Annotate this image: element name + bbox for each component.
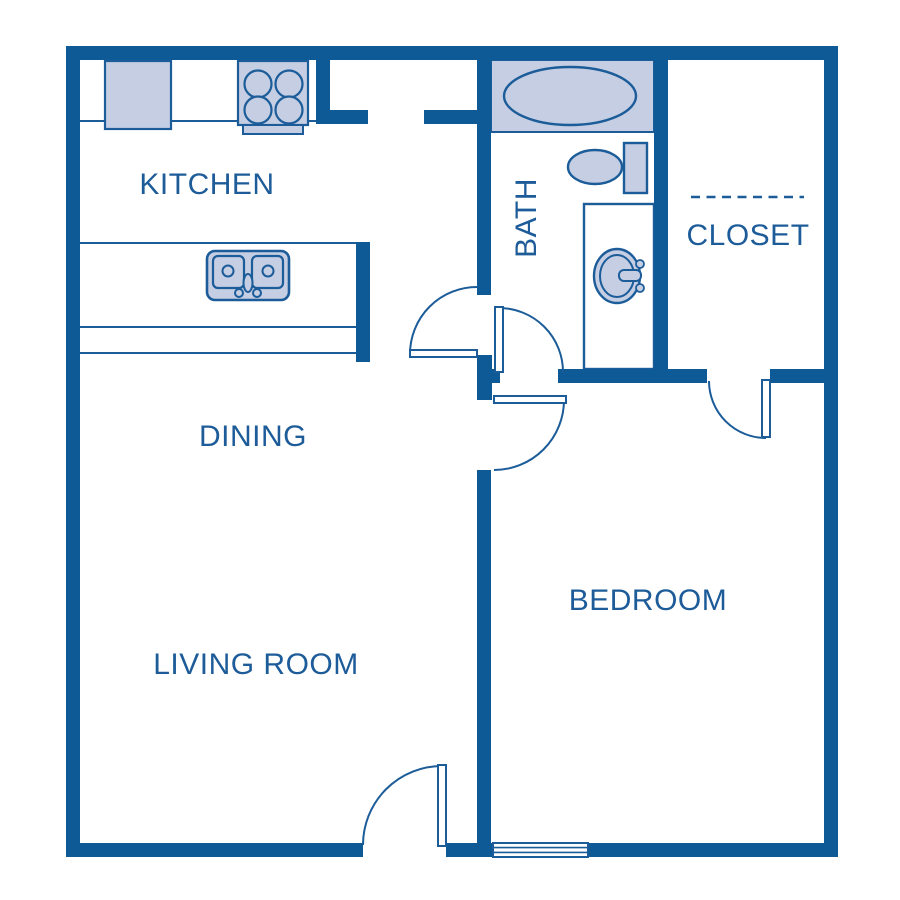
toilet-tank: [624, 143, 647, 193]
entry-door-leaf: [438, 765, 446, 846]
refrigerator: [105, 61, 171, 129]
kitchen-sink-drain: [263, 266, 274, 277]
vanity-faucet: [619, 270, 641, 281]
wall-bath-bottom: [558, 369, 707, 383]
stove-burner: [245, 71, 272, 98]
vanity-faucet-knob: [636, 260, 644, 268]
bedroom-door-swing: [494, 400, 564, 470]
plan-svg: [0, 0, 900, 900]
room-label-bath: BATH: [510, 178, 544, 258]
wall-kitchen-stub: [330, 110, 368, 124]
bath-bedroom-door-swing: [499, 308, 563, 372]
stove-burner: [276, 71, 303, 98]
wall-top: [66, 46, 838, 60]
bedroom-door-leaf: [494, 396, 566, 403]
toilet-bowl: [568, 150, 622, 184]
wall-closet-bottom: [770, 369, 824, 383]
kitchen-faucet-knob: [235, 289, 243, 297]
wall-left: [66, 46, 80, 857]
wall-hall-block: [477, 355, 492, 400]
wall-bottom-mid: [446, 843, 493, 857]
wall-bottom-left: [66, 843, 363, 857]
wall-bedroom-divider: [477, 470, 491, 843]
stove-burner: [245, 97, 272, 124]
bathtub: [504, 67, 636, 125]
room-label-closet: CLOSET: [686, 219, 809, 253]
vanity-faucet-knob: [636, 284, 644, 292]
wall-bottom-right: [588, 843, 838, 857]
bath-door-leaf: [410, 350, 477, 357]
bath-bedroom-door-leaf: [495, 307, 503, 372]
wall-kitchen-vert: [316, 60, 330, 124]
kitchen-faucet-knob: [253, 289, 261, 297]
room-label-dining: DINING: [199, 420, 307, 454]
closet-door-leaf: [762, 380, 770, 437]
stove-tray: [243, 125, 303, 134]
bedroom-window: [493, 843, 588, 857]
room-label-kitchen: KITCHEN: [139, 168, 274, 202]
wall-bath-left: [477, 60, 491, 295]
wall-right: [824, 46, 838, 857]
wall-bath-right: [654, 60, 668, 383]
floor-plan: KITCHEN DINING LIVING ROOM BEDROOM BATH …: [0, 0, 900, 900]
room-label-living-room: LIVING ROOM: [153, 648, 359, 682]
entry-door-swing: [363, 766, 442, 845]
room-label-bedroom: BEDROOM: [569, 584, 728, 618]
bath-door-swing: [410, 287, 477, 354]
kitchen-sink-drain: [223, 266, 234, 277]
closet-door-swing: [709, 381, 766, 438]
stove-burner: [276, 97, 303, 124]
kitchen-faucet: [244, 274, 253, 292]
wall-nook-stub: [424, 110, 477, 124]
wall-island-end: [356, 242, 370, 362]
